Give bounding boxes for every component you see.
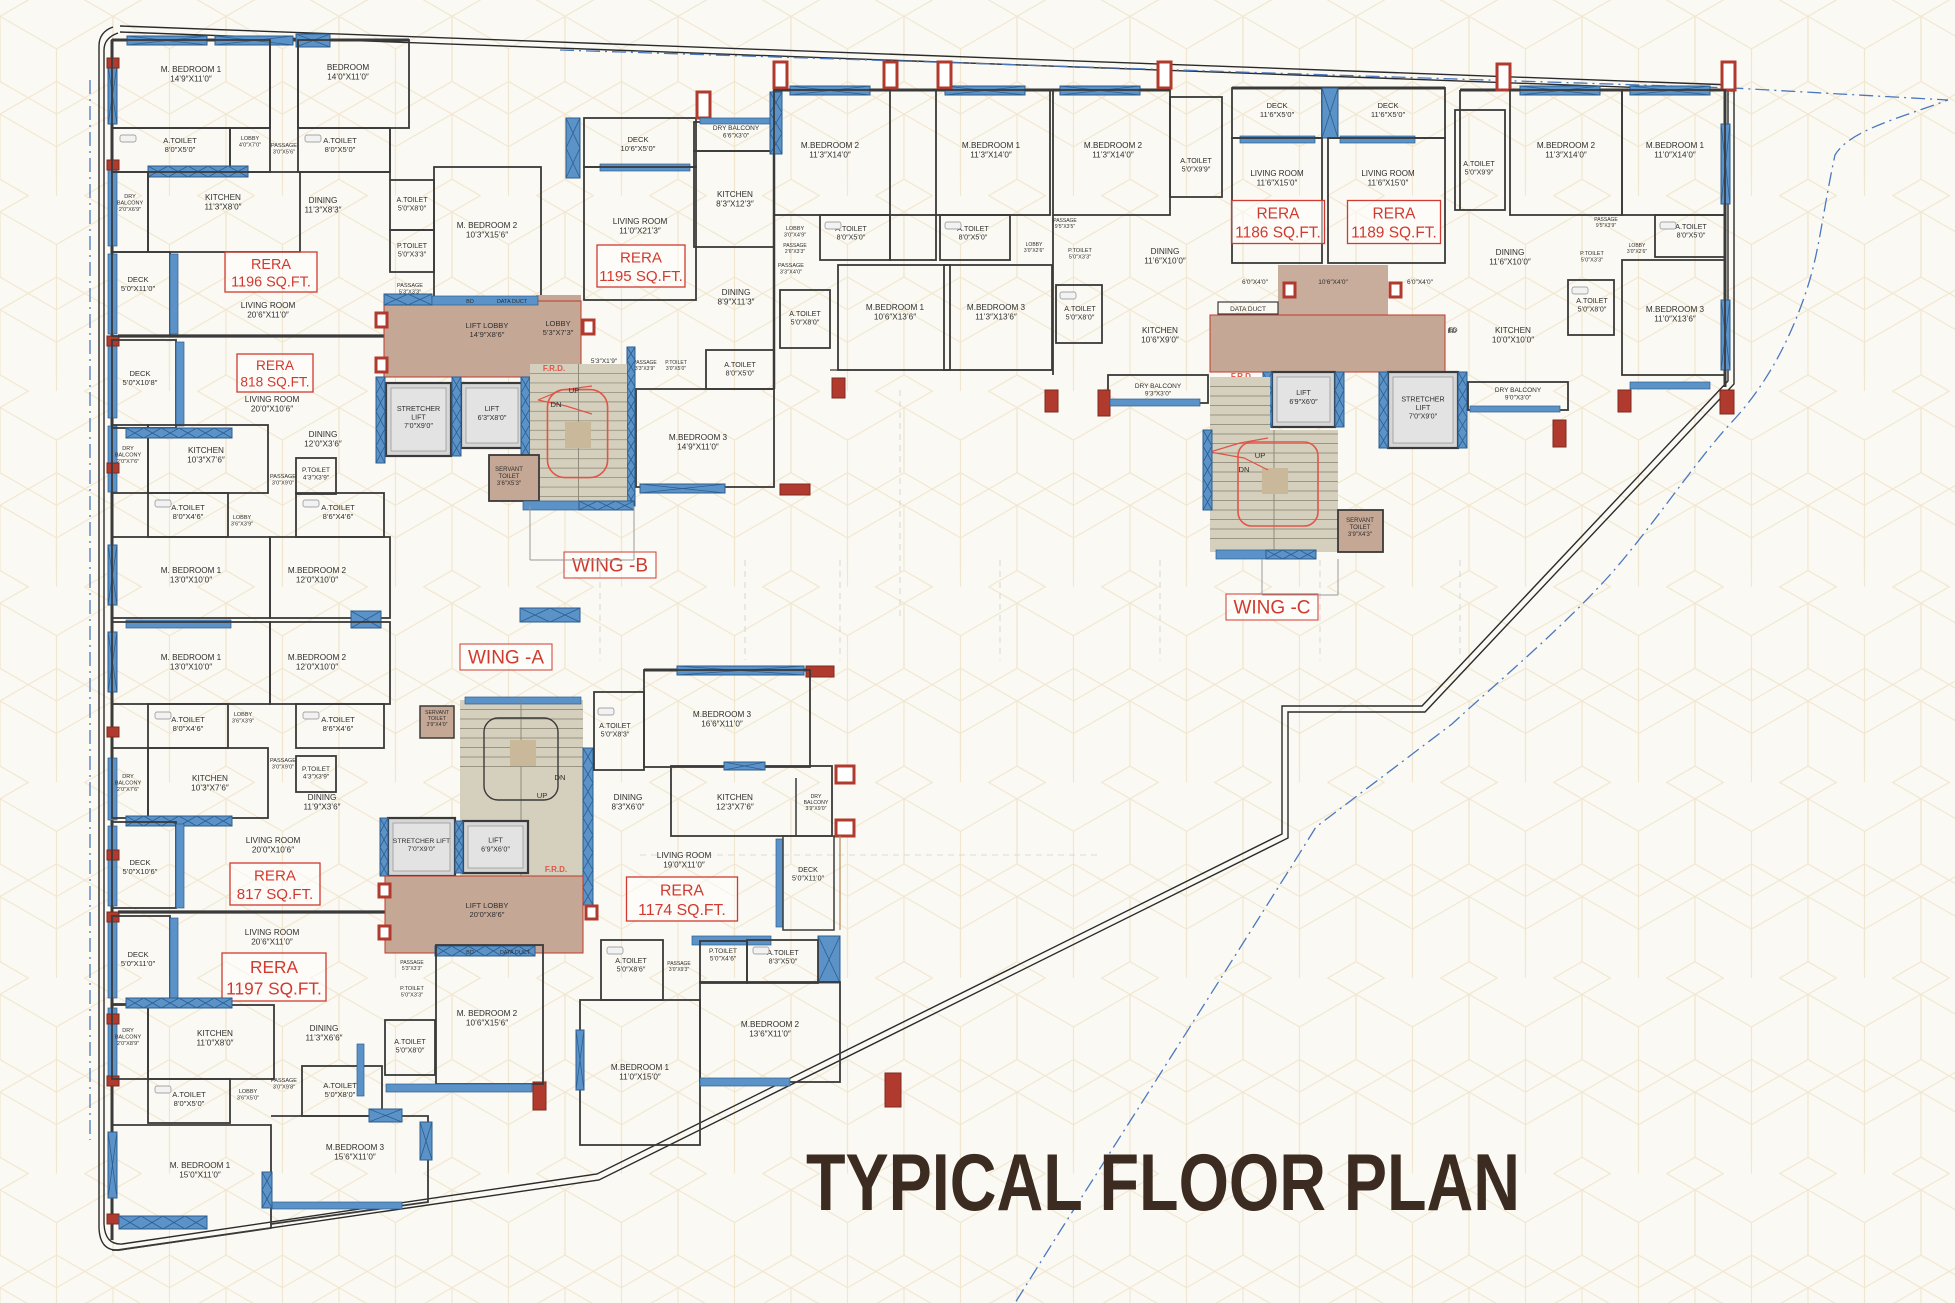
svg-text:1196 SQ.FT.: 1196 SQ.FT. — [231, 274, 311, 290]
svg-text:M.BEDROOM 213’6″X11’0″: M.BEDROOM 213’6″X11’0″ — [741, 1020, 800, 1039]
svg-text:M.BEDROOM 211’3″X14’0″: M.BEDROOM 211’3″X14’0″ — [1537, 141, 1596, 160]
svg-text:PASSAGE9’5″X3’5″: PASSAGE9’5″X3’5″ — [1053, 218, 1077, 230]
svg-text:SERVANTTOILET3'9″X4'3″: SERVANTTOILET3'9″X4'3″ — [1346, 518, 1374, 538]
svg-text:UP: UP — [1255, 451, 1266, 460]
svg-text:A.TOILET5’0″X9’9″: A.TOILET5’0″X9’9″ — [1180, 157, 1212, 173]
svg-text:LIVING ROOM19’0″X11’0″: LIVING ROOM19’0″X11’0″ — [657, 851, 712, 870]
svg-text:PASSAGE3’0″X9’3″: PASSAGE3’0″X9’3″ — [667, 961, 691, 973]
svg-text:WING -A: WING -A — [468, 648, 544, 669]
svg-text:P.TOILET5’0″X4’6″: P.TOILET5’0″X4’6″ — [709, 948, 737, 963]
svg-text:DATA DUCT: DATA DUCT — [1230, 306, 1266, 313]
svg-text:PASSAGE3’0″X9’0″: PASSAGE3’0″X9’0″ — [270, 474, 296, 487]
svg-text:M.BEDROOM 111’0″X15’0″: M.BEDROOM 111’0″X15’0″ — [611, 1063, 670, 1082]
svg-text:DINING11’3″X6’6″: DINING11’3″X6’6″ — [305, 1024, 342, 1043]
svg-text:6'0″X4'0″: 6'0″X4'0″ — [1242, 279, 1269, 286]
svg-text:1195 SQ.FT.: 1195 SQ.FT. — [599, 268, 683, 285]
svg-text:1197 SQ.FT.: 1197 SQ.FT. — [226, 978, 322, 998]
svg-text:DN: DN — [1239, 465, 1250, 474]
svg-text:RERA: RERA — [254, 868, 297, 885]
svg-text:KITCHEN12’3″X7’6″: KITCHEN12’3″X7’6″ — [716, 793, 754, 812]
svg-text:PASSAGE3’0″X5’6″: PASSAGE3’0″X5’6″ — [271, 143, 297, 156]
svg-text:818 SQ.FT.: 818 SQ.FT. — [240, 375, 309, 390]
svg-text:RERA: RERA — [620, 250, 663, 267]
svg-text:LIVING ROOM20’6″X11’0″: LIVING ROOM20’6″X11’0″ — [241, 301, 296, 320]
svg-text:RERA: RERA — [1373, 206, 1417, 223]
svg-text:LIVING ROOM20’0″X10’6″: LIVING ROOM20’0″X10’6″ — [246, 836, 301, 855]
svg-text:DINING11’9″X3’6″: DINING11’9″X3’6″ — [303, 793, 340, 812]
svg-text:A.TOILET5’0″X8’0″: A.TOILET5’0″X8’0″ — [397, 197, 429, 212]
svg-text:M.BEDROOM 111’0″X14’0″: M.BEDROOM 111’0″X14’0″ — [1646, 141, 1705, 160]
svg-text:1174 SQ.FT.: 1174 SQ.FT. — [638, 902, 726, 919]
svg-text:F.R.D.: F.R.D. — [545, 865, 567, 874]
svg-text:DN: DN — [551, 400, 562, 409]
svg-text:A.TOILET8’0″X5’0″: A.TOILET8’0″X5’0″ — [323, 136, 357, 154]
svg-text:P.TOILET4’3″X3’9″: P.TOILET4’3″X3’9″ — [302, 467, 330, 482]
svg-text:817 SQ.FT.: 817 SQ.FT. — [237, 886, 313, 903]
svg-text:PASSAGE5’3″X3’3″: PASSAGE5’3″X3’3″ — [400, 960, 424, 972]
svg-text:RERA: RERA — [660, 882, 704, 899]
svg-text:M.BEDROOM 211’3″X14’0″: M.BEDROOM 211’3″X14’0″ — [1084, 141, 1143, 160]
svg-text:A.TOILET5’0″X8’0″: A.TOILET5’0″X8’0″ — [1576, 297, 1608, 313]
svg-text:DATA DUCT: DATA DUCT — [497, 299, 528, 305]
svg-text:PASSAGE2’6″X3’3″: PASSAGE2’6″X3’3″ — [783, 243, 807, 255]
svg-text:M.BEDROOM 311’0″X13’6″: M.BEDROOM 311’0″X13’6″ — [1646, 305, 1705, 324]
svg-text:1189 SQ.FT.: 1189 SQ.FT. — [1351, 224, 1437, 241]
svg-text:A.TOILET5’0″X8’0″: A.TOILET5’0″X8’0″ — [789, 310, 821, 326]
svg-text:DINING11’3″X8’3″: DINING11’3″X8’3″ — [304, 196, 341, 215]
svg-text:SERVANTTOILET3’6″X5’3″: SERVANTTOILET3’6″X5’3″ — [495, 467, 523, 487]
svg-text:A.TOILET8’0″X5’0″: A.TOILET8’0″X5’0″ — [1675, 223, 1707, 239]
svg-text:M.BEDROOM 314’9″X11’0″: M.BEDROOM 314’9″X11’0″ — [669, 433, 728, 452]
svg-text:1186 SQ.FT.: 1186 SQ.FT. — [1235, 224, 1321, 241]
svg-text:A.TOILET8’0″X5’0″: A.TOILET8’0″X5’0″ — [163, 136, 197, 154]
svg-text:M.BEDROOM 212’0″X10’0″: M.BEDROOM 212’0″X10’0″ — [288, 566, 347, 585]
svg-text:LIFT LOBBY20’0″X8’6″: LIFT LOBBY20’0″X8’6″ — [466, 901, 509, 919]
svg-text:LIVING ROOM20’6″X11’0″: LIVING ROOM20’6″X11’0″ — [245, 928, 300, 947]
svg-text:M.BEDROOM 111’3″X14’0″: M.BEDROOM 111’3″X14’0″ — [962, 141, 1021, 160]
svg-text:M.BEDROOM 316’6″X11’0″: M.BEDROOM 316’6″X11’0″ — [693, 710, 752, 729]
svg-text:A.TOILET5’0″X9’9″: A.TOILET5’0″X9’9″ — [1463, 160, 1495, 176]
svg-text:LOBBY4’0″X7’0″: LOBBY4’0″X7’0″ — [239, 136, 261, 149]
svg-text:A.TOILET5’0″X8’0″: A.TOILET5’0″X8’0″ — [394, 1038, 426, 1054]
svg-text:A.TOILET8’0″X5’0″: A.TOILET8’0″X5’0″ — [957, 225, 989, 241]
svg-text:M.BEDROOM 311’3″X13’6″: M.BEDROOM 311’3″X13’6″ — [967, 303, 1026, 322]
svg-text:PASSAGE3’3″X3’9″: PASSAGE3’3″X3’9″ — [633, 360, 657, 372]
svg-text:A.TOILET8’0″X5’0″: A.TOILET8’0″X5’0″ — [172, 1090, 206, 1108]
svg-text:LIVING ROOM11’6″X15’0″: LIVING ROOM11’6″X15’0″ — [1250, 169, 1304, 187]
svg-text:LIVING ROOM11’0″X21’3″: LIVING ROOM11’0″X21’3″ — [613, 217, 668, 236]
svg-text:PASSAGE9’5″X3’9″: PASSAGE9’5″X3’9″ — [1594, 217, 1618, 229]
svg-text:M.BEDROOM 211’3″X14’0″: M.BEDROOM 211’3″X14’0″ — [801, 141, 860, 160]
svg-text:P.TOILET5’0″X3’3″: P.TOILET5’0″X3’3″ — [1068, 248, 1092, 261]
svg-text:BD: BD — [466, 950, 474, 956]
svg-text:LOBBY5’3″X7’3″: LOBBY5’3″X7’3″ — [543, 319, 574, 337]
svg-text:LOBBY3’0″X4’9″: LOBBY3’0″X4’9″ — [784, 226, 806, 239]
svg-text:A.TOILET8’3″X5’0″: A.TOILET8’3″X5’0″ — [767, 949, 799, 965]
svg-text:LIVING ROOM11’6″X15’0″: LIVING ROOM11’6″X15’0″ — [1361, 169, 1415, 187]
svg-text:KITCHEN10’3″X7’6″: KITCHEN10’3″X7’6″ — [191, 774, 229, 793]
svg-text:KITCHEN8’3″X12’3″: KITCHEN8’3″X12’3″ — [716, 190, 754, 209]
svg-text:DN: DN — [555, 773, 566, 782]
svg-text:LOBBY3’6″X3’9″: LOBBY3’6″X3’9″ — [231, 515, 253, 528]
svg-text:LIFT LOBBY14’9″X8’6″: LIFT LOBBY14’9″X8’6″ — [466, 321, 509, 339]
svg-text:BD: BD — [466, 299, 474, 305]
svg-text:PASSAGE3’0″X9’0″: PASSAGE3’0″X9’0″ — [270, 758, 296, 771]
svg-text:P.TOILET5’0″X3’3″: P.TOILET5’0″X3’3″ — [397, 243, 428, 258]
svg-text:10'6″X4'0″: 10'6″X4'0″ — [1318, 279, 1348, 286]
svg-text:A.TOILET5’0″X8’6″: A.TOILET5’0″X8’6″ — [615, 957, 647, 973]
svg-text:PASSAGE3’3″X4’0″: PASSAGE3’3″X4’0″ — [778, 263, 804, 276]
svg-text:F.R.D.: F.R.D. — [543, 364, 565, 373]
svg-text:LOBBY3’6″X5’0″: LOBBY3’6″X5’0″ — [237, 1089, 259, 1102]
svg-text:BEDROOM14’0″X11’0″: BEDROOM14’0″X11’0″ — [327, 63, 369, 82]
svg-text:ED: ED — [1448, 327, 1457, 334]
svg-text:P.TOILET4’3″X3’9″: P.TOILET4’3″X3’9″ — [302, 766, 330, 781]
svg-text:A.TOILET8’0″X5’0″: A.TOILET8’0″X5’0″ — [724, 361, 756, 377]
svg-text:LOBBY3’0″X2’6″: LOBBY3’0″X2’6″ — [1627, 243, 1647, 255]
svg-text:RERA: RERA — [250, 957, 298, 977]
svg-text:WING -B: WING -B — [572, 556, 648, 577]
svg-text:RERA: RERA — [1257, 206, 1301, 223]
svg-text:UP: UP — [537, 791, 548, 800]
svg-text:KITCHEN11’0″X8’0″: KITCHEN11’0″X8’0″ — [196, 1029, 233, 1048]
svg-text:A.TOILET8’6″X4’6″: A.TOILET8’6″X4’6″ — [321, 503, 355, 521]
svg-text:M.BEDROOM 212’0″X10’0″: M.BEDROOM 212’0″X10’0″ — [288, 653, 347, 672]
svg-text:P.TOILET3’0″X5’0″: P.TOILET3’0″X5’0″ — [665, 360, 687, 372]
svg-text:RERA: RERA — [251, 257, 291, 273]
svg-text:DINING8’9″X11’3″: DINING8’9″X11’3″ — [717, 288, 754, 307]
svg-text:KITCHEN10’6″X9’0″: KITCHEN10’6″X9’0″ — [1141, 326, 1179, 345]
svg-text:A.TOILET5’0″X8’0″: A.TOILET5’0″X8’0″ — [323, 1081, 357, 1099]
svg-text:A.TOILET5’0″X8’0″: A.TOILET5’0″X8’0″ — [1064, 305, 1096, 321]
svg-text:P.TOILET5’0″X3’3″: P.TOILET5’0″X3’3″ — [400, 986, 424, 999]
svg-text:WING -C: WING -C — [1233, 598, 1310, 619]
svg-text:KITCHEN11’3″X8’0″: KITCHEN11’3″X8’0″ — [204, 193, 241, 212]
svg-text:UP: UP — [569, 386, 580, 395]
svg-text:RERA: RERA — [256, 358, 295, 373]
svg-text:KITCHEN10’0″X10’0″: KITCHEN10’0″X10’0″ — [1492, 326, 1534, 345]
svg-text:M.BEDROOM 110’6″X13’6″: M.BEDROOM 110’6″X13’6″ — [866, 303, 925, 322]
svg-text:A.TOILET8’6″X4’6″: A.TOILET8’6″X4’6″ — [321, 715, 355, 733]
svg-text:6'0″X4'0″: 6'0″X4'0″ — [1407, 279, 1434, 286]
svg-text:A.TOILET8’0″X4’6″: A.TOILET8’0″X4’6″ — [171, 715, 205, 733]
svg-text:5’3″X1’9″: 5’3″X1’9″ — [591, 358, 618, 365]
svg-text:DINING12’0″X3’6″: DINING12’0″X3’6″ — [304, 430, 342, 449]
svg-text:A.TOILET5’0″X8’3″: A.TOILET5’0″X8’3″ — [599, 722, 631, 738]
svg-text:LIVING ROOM20’0″X10’6″: LIVING ROOM20’0″X10’6″ — [245, 395, 300, 414]
svg-text:P.TOILET5’0″X3’3″: P.TOILET5’0″X3’3″ — [1580, 251, 1604, 264]
svg-text:A.TOILET8’0″X4’6″: A.TOILET8’0″X4’6″ — [171, 503, 205, 521]
svg-text:DATA DUCT: DATA DUCT — [500, 950, 531, 956]
svg-text:TYPICAL FLOOR PLAN: TYPICAL FLOOR PLAN — [806, 1138, 1520, 1228]
svg-text:LOBBY3’6″X3’9″: LOBBY3’6″X3’9″ — [232, 712, 254, 725]
svg-text:PASSAGE3’0″X9’8″: PASSAGE3’0″X9’8″ — [271, 1078, 297, 1091]
svg-text:LOBBY3’0″X2’6″: LOBBY3’0″X2’6″ — [1024, 242, 1044, 254]
svg-text:KITCHEN10’3″X7’6″: KITCHEN10’3″X7’6″ — [187, 446, 225, 465]
svg-text:DINING8’3″X6’0″: DINING8’3″X6’0″ — [611, 793, 644, 812]
svg-text:M.BEDROOM 315’6″X11’0″: M.BEDROOM 315’6″X11’0″ — [326, 1143, 385, 1162]
